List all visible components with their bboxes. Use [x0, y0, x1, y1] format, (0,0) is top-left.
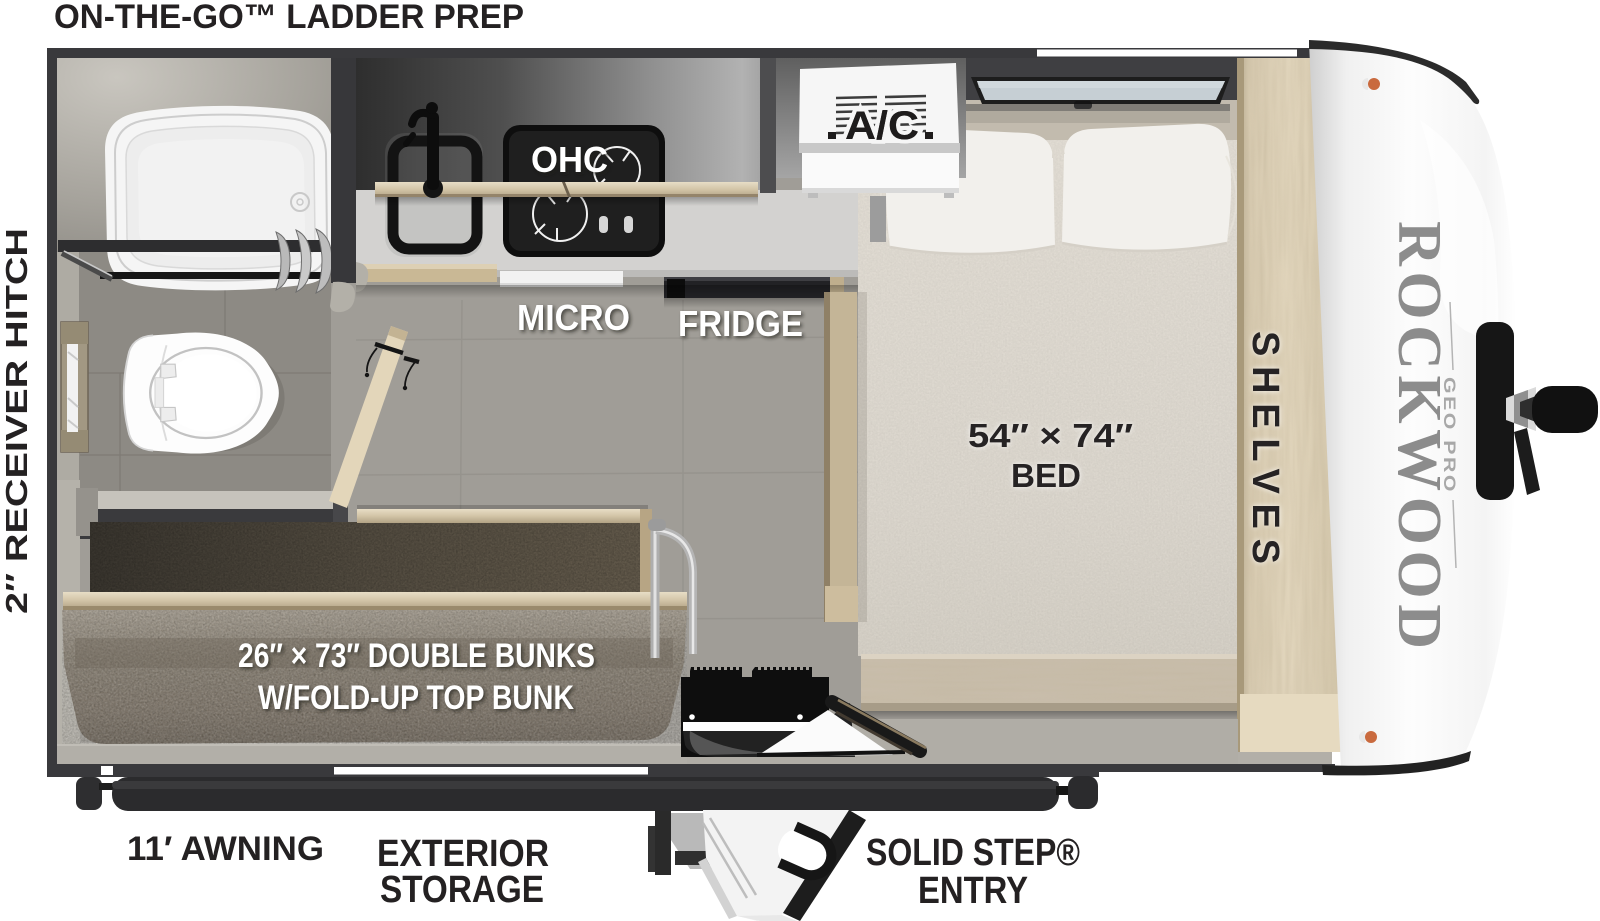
svg-text:STORAGE: STORAGE [380, 869, 544, 911]
svg-text:54″ × 74″: 54″ × 74″ [968, 417, 1133, 454]
svg-text:W/FOLD-UP TOP BUNK: W/FOLD-UP TOP BUNK [258, 679, 574, 717]
svg-text:BED: BED [1011, 457, 1081, 494]
svg-text:OHC: OHC [531, 139, 608, 180]
svg-text:FRIDGE: FRIDGE [678, 303, 803, 344]
svg-text:2″ RECEIVER HITCH: 2″ RECEIVER HITCH [0, 228, 34, 614]
svg-text:GEO PRO: GEO PRO [1440, 377, 1459, 494]
svg-text:ENTRY: ENTRY [918, 870, 1028, 912]
svg-text:MICRO: MICRO [517, 297, 630, 338]
svg-text:SOLID STEP®: SOLID STEP® [866, 832, 1080, 874]
svg-text:11′ AWNING: 11′ AWNING [127, 830, 324, 868]
svg-text:ON-THE-GO™ LADDER PREP: ON-THE-GO™ LADDER PREP [54, 0, 524, 36]
svg-text:A/C: A/C [845, 104, 919, 148]
svg-text:26″ × 73″ DOUBLE BUNKS: 26″ × 73″ DOUBLE BUNKS [238, 637, 595, 675]
